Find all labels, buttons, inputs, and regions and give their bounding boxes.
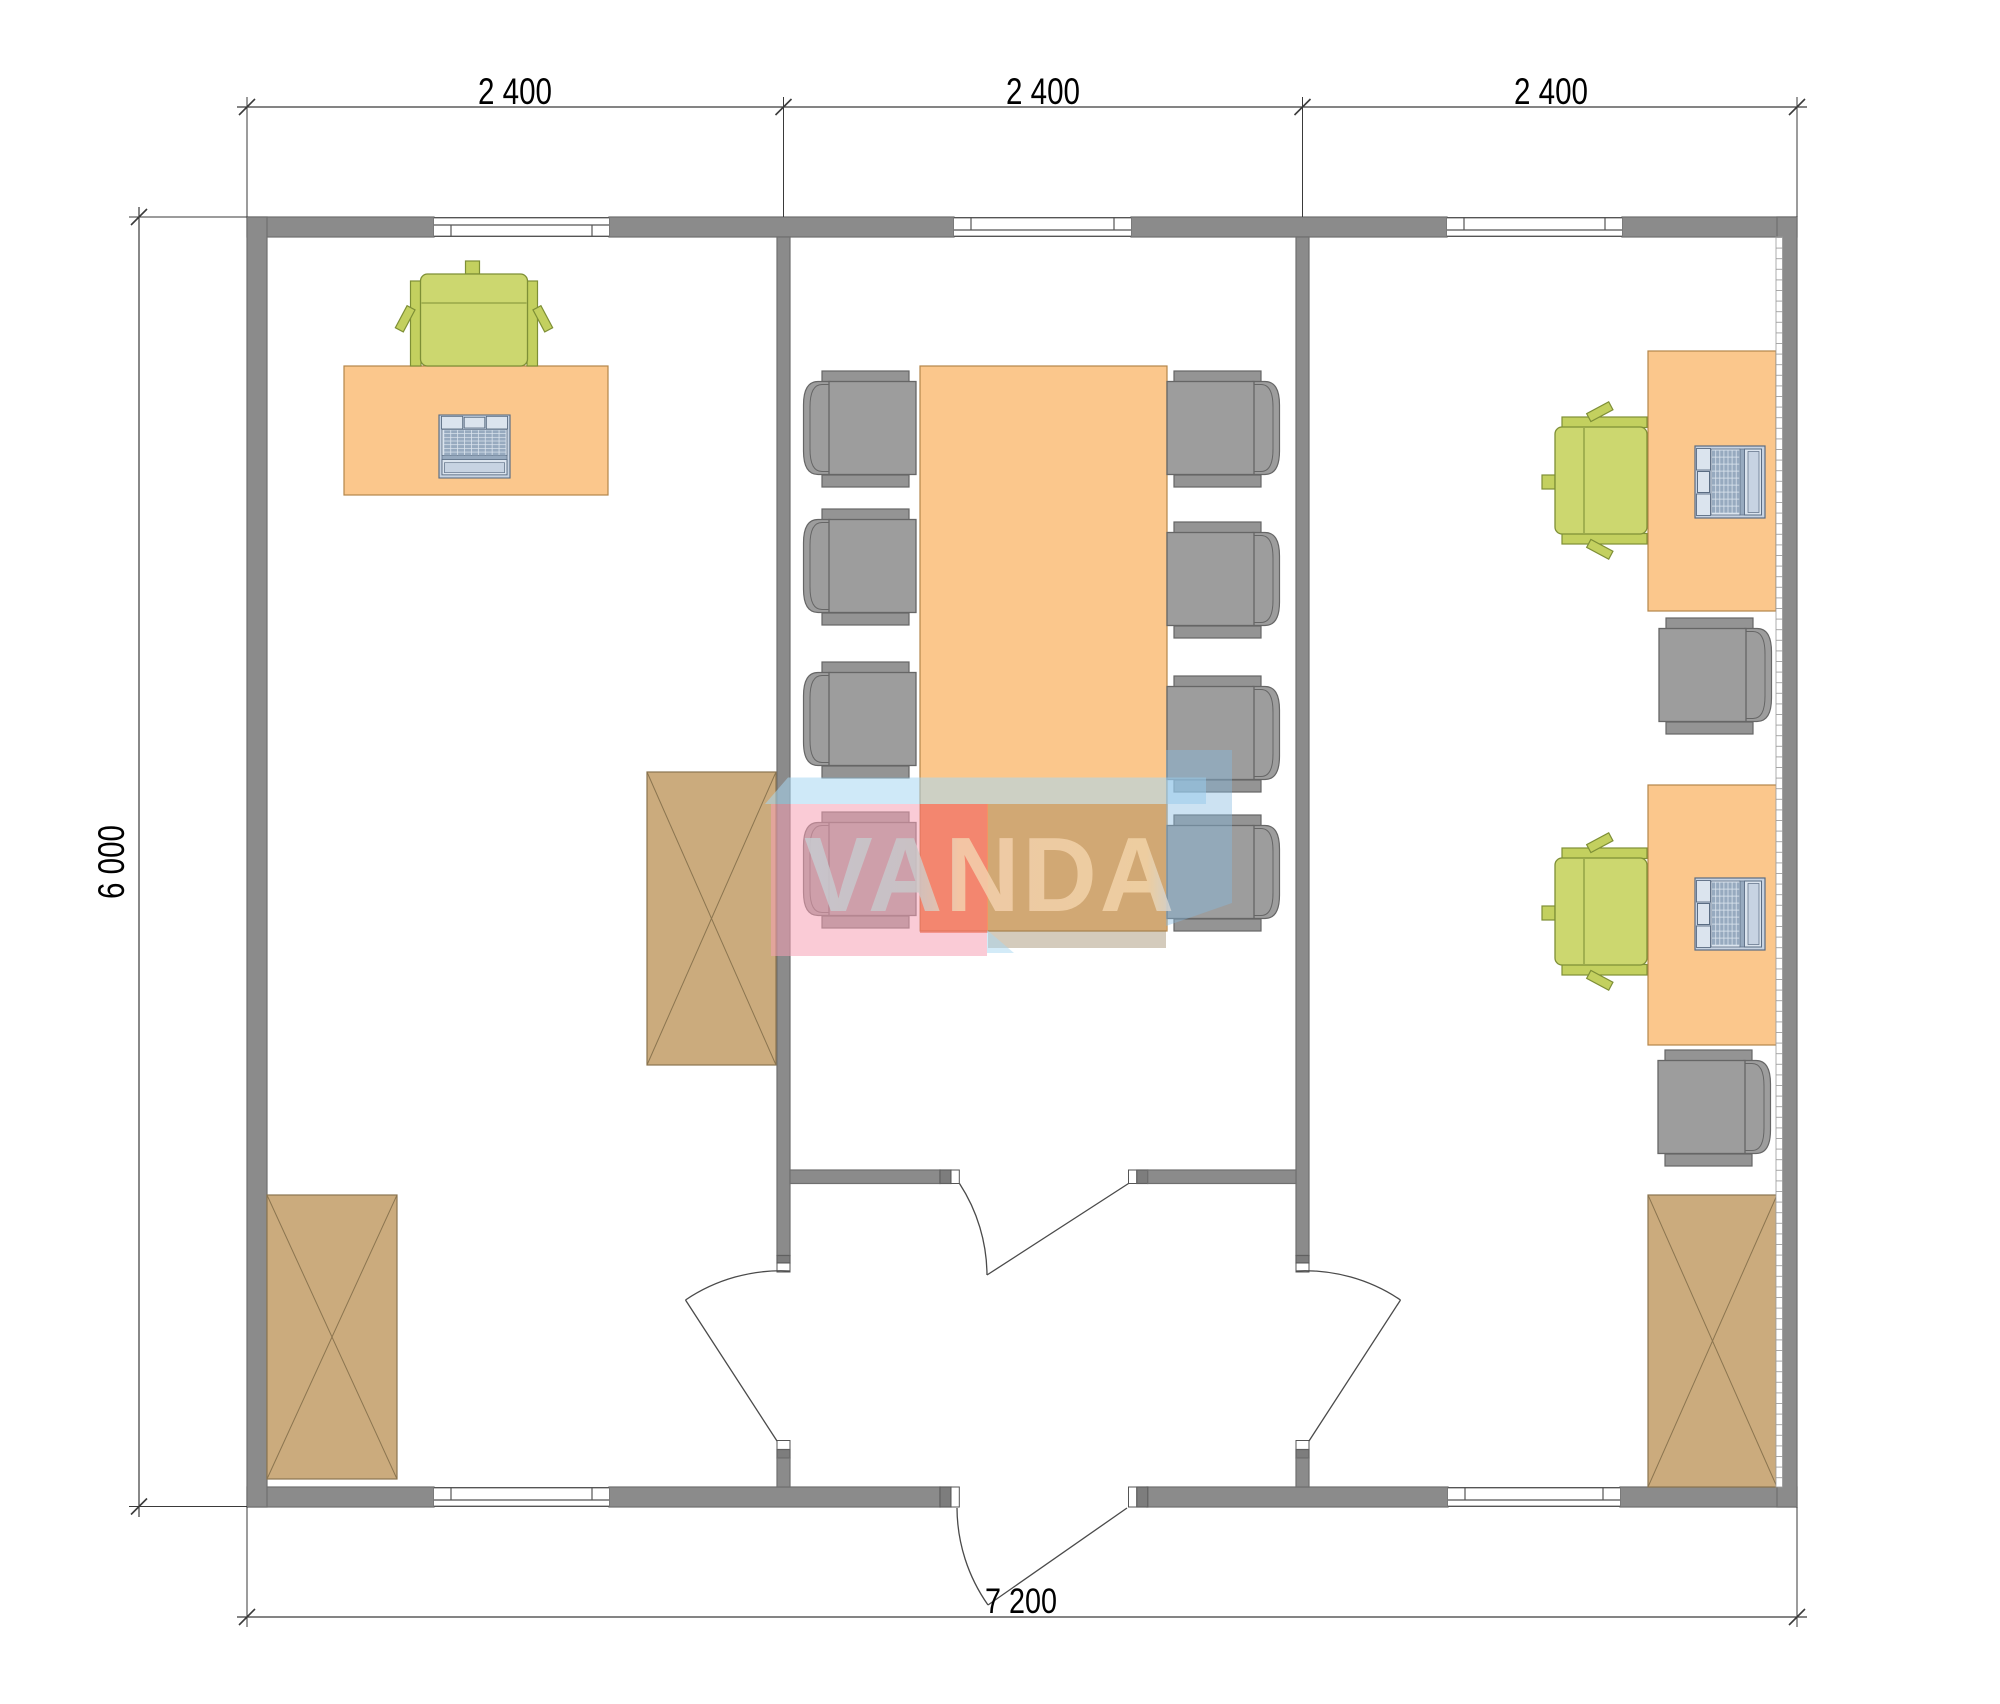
svg-text:VANDA: VANDA — [804, 816, 1177, 934]
svg-text:2 400: 2 400 — [1514, 71, 1588, 112]
svg-text:2 400: 2 400 — [1006, 71, 1080, 112]
svg-text:7 200: 7 200 — [985, 1582, 1057, 1621]
svg-text:6 000: 6 000 — [91, 825, 132, 899]
svg-text:2 400: 2 400 — [478, 71, 552, 112]
